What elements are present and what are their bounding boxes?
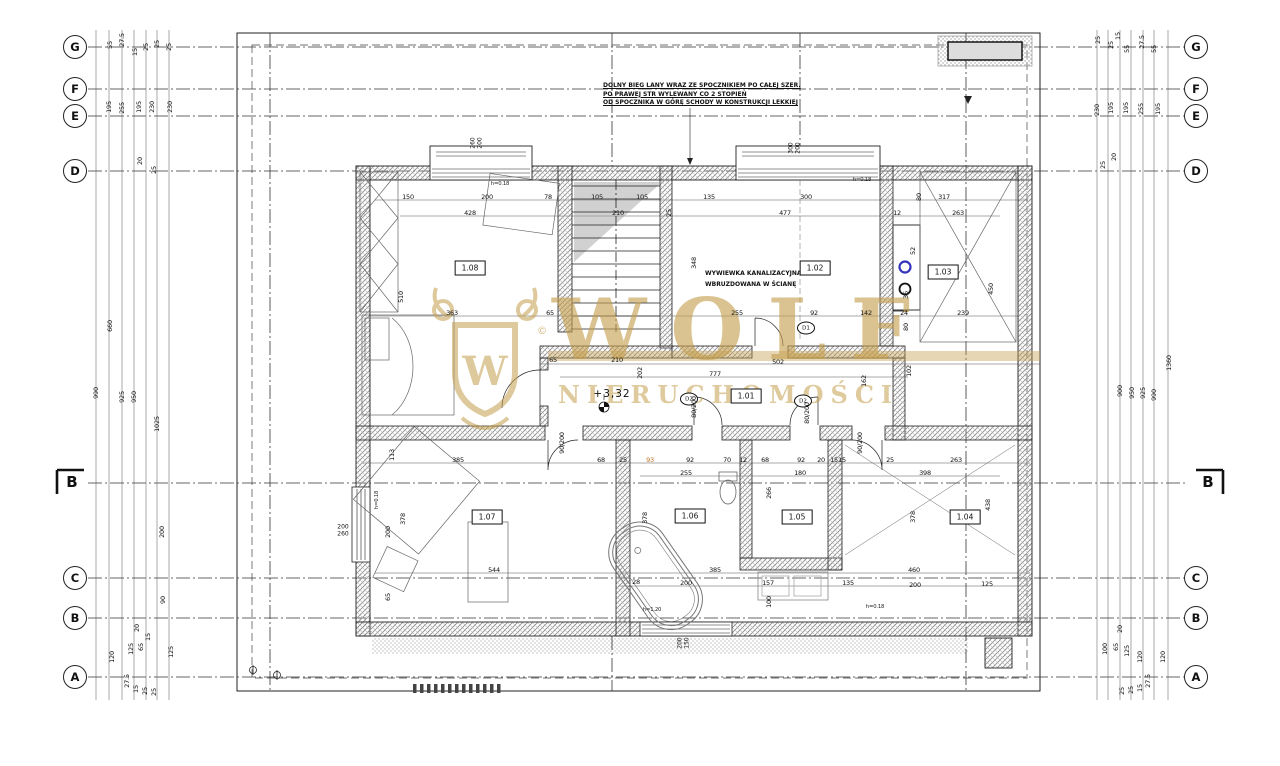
stair-note-line3: OD SPOCZNIKA W GÓRĘ SCHODY W KONSTRUKCJI… — [603, 99, 801, 108]
section-label-left: B — [66, 473, 77, 491]
section-label-right: B — [1202, 473, 1213, 491]
bottom-right-duct — [985, 638, 1012, 668]
vent-note-line1: WYWIEWKA KANALIZACYJNA — [705, 268, 802, 279]
stair-note-line1: DOLNY BIEG LANY WRAZ ZE SPOCZNIKIEM PO C… — [603, 82, 801, 91]
vent-note: WYWIEWKA KANALIZACYJNA WBRUZDOWANA W ŚCI… — [705, 268, 802, 290]
floor-plan-sheet: W WOLF NIERUCHOMOŚCI © DOLNY BIEG LANY W… — [0, 0, 1280, 766]
section-cut-marks — [57, 470, 1223, 494]
chimney — [938, 36, 1032, 66]
vent-note-line2: WBRUZDOWANA W ŚCIANĘ — [705, 279, 802, 290]
stair-note-line2: PO PRAWEJ STR WYLEWANY CO 2 STOPIEŃ — [603, 91, 801, 100]
watermark-monogram: W — [462, 348, 509, 395]
wall-windows — [352, 487, 732, 636]
level-value: +3,32 — [593, 388, 630, 400]
watermark-crest: W — [434, 288, 536, 428]
watermark-name: WOLF — [552, 288, 934, 372]
bathtub — [598, 511, 714, 640]
terrace — [250, 638, 969, 693]
copyright-symbol: © — [537, 326, 547, 337]
sanitary-fixtures — [719, 472, 828, 600]
stair-construction-note: DOLNY BIEG LANY WRAZ ZE SPOCZNIKIEM PO C… — [603, 82, 801, 108]
